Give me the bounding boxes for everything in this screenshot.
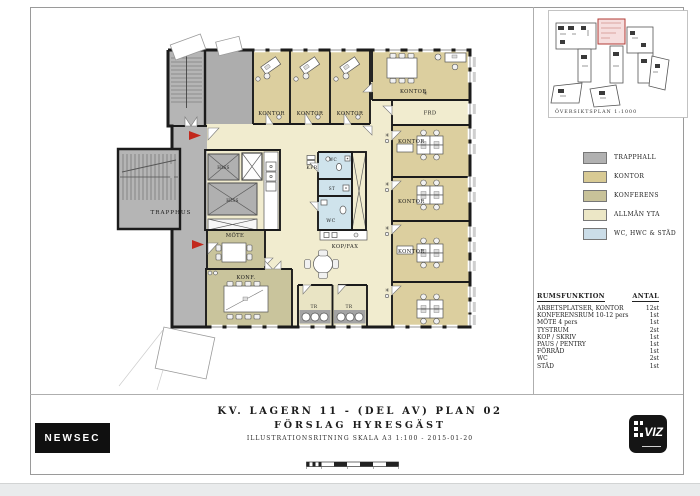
overview-plan: ÖVERSIKTSPLAN 1:1000 <box>548 10 688 118</box>
column-divider <box>533 7 534 395</box>
legend-swatch-wc <box>584 228 607 239</box>
label-hiss-2: HISS <box>226 198 239 203</box>
row-label: ARBETSPLATSER, KONTOR <box>537 305 624 312</box>
viz-tagline-mark <box>642 446 661 448</box>
table-row: WC2st <box>537 355 659 362</box>
floor-plan: ✳ ✳ ✳ ✳ ✳ TRAPPHUS HISS HISS KONTOR KONT… <box>105 14 525 394</box>
viz-dot <box>634 421 638 425</box>
label-frd: FRD <box>424 111 437 117</box>
legend: TRAPPHALL KONTOR KONFERENS ALLMÄN YTA WC… <box>583 148 676 243</box>
drawing-title: KV. LAGERN 11 - (DEL AV) PLAN 02 <box>160 406 560 417</box>
svg-text:✳: ✳ <box>385 132 390 139</box>
row-count: 1st <box>650 312 659 319</box>
room-table-col-count: ANTAL <box>632 292 659 302</box>
label-konf: KONF. <box>237 275 256 281</box>
row-count: 1st <box>650 319 659 326</box>
label-st: ST <box>329 186 335 191</box>
room-table-col-function: RUMSFUNKTION <box>537 292 605 302</box>
row-label: TYSTRUM <box>537 327 569 334</box>
drawing-info: ILLUSTRATIONSRITNING SKALA A3 1:100 - 20… <box>160 435 560 442</box>
viz-logo: VIZ <box>629 415 667 453</box>
label-hiss-1: HISS <box>217 165 230 170</box>
table-row: KONFERENSRUM 10-12 pers1st <box>537 312 659 319</box>
label-kontor-c: KONTOR <box>337 111 364 117</box>
room-function-table: RUMSFUNKTION ANTAL ARBETSPLATSER, KONTOR… <box>537 292 659 370</box>
gray-room-top <box>206 51 253 124</box>
row-count: 1st <box>650 341 659 348</box>
label-wc-top: WC <box>329 157 337 162</box>
row-label: WC <box>537 355 548 362</box>
legend-swatch-kontor <box>584 171 607 182</box>
legend-label-wc: WC, HWC & STÄD <box>614 230 676 237</box>
outside-margin <box>0 483 700 496</box>
legend-label-allman: ALLMÄN YTA <box>614 211 660 218</box>
legend-row-konferens: KONFERENS <box>583 186 676 205</box>
row-label: FÖRRÅD <box>537 348 564 355</box>
svg-text:✳: ✳ <box>385 181 390 188</box>
legend-label-trapphall: TRAPPHALL <box>614 154 656 161</box>
table-row: TYSTRUM2st <box>537 327 659 334</box>
row-count: 2st <box>650 327 659 334</box>
row-label: MÖTE 4 pers <box>537 319 577 326</box>
viz-logo-text: VIZ <box>644 425 663 439</box>
label-mote: MÖTE <box>226 232 244 239</box>
overview-title: ÖVERSIKTSPLAN 1:1000 <box>555 108 637 115</box>
label-wc-bottom: WC <box>326 218 335 224</box>
drawing-subtitle: FÖRSLAG HYRESGÄST <box>160 420 560 431</box>
scale-bar <box>306 460 406 472</box>
table-row: MÖTE 4 pers1st <box>537 319 659 326</box>
label-tr-2: TR <box>346 304 353 309</box>
viz-dot <box>634 433 638 437</box>
legend-swatch-konferens <box>584 190 607 201</box>
row-count: 2st <box>650 355 659 362</box>
title-block: KV. LAGERN 11 - (DEL AV) PLAN 02 FÖRSLAG… <box>160 406 560 442</box>
legend-row-wc: WC, HWC & STÄD <box>583 224 676 243</box>
row-label: STÄD <box>537 363 554 370</box>
label-tr-1: TR <box>311 304 318 309</box>
legend-row-trapphall: TRAPPHALL <box>583 148 676 167</box>
table-row: KOP / SKRIV1st <box>537 334 659 341</box>
newsec-logo: NEWSEC <box>35 423 110 453</box>
viz-dot <box>640 433 644 437</box>
table-row: FÖRRÅD1st <box>537 348 659 355</box>
legend-label-konferens: KONFERENS <box>614 192 659 199</box>
row-count: 1st <box>650 363 659 370</box>
label-kontor-2: KONTOR <box>398 139 425 145</box>
svg-text:✳: ✳ <box>385 287 390 294</box>
label-kpr: KPR <box>306 165 317 171</box>
label-kontor-topright: KONTOR <box>400 89 427 95</box>
titleblock-divider <box>30 394 683 395</box>
row-count: 12st <box>646 305 659 312</box>
label-kontor-4: KONTOR <box>398 249 425 255</box>
label-trapphus: TRAPPHUS <box>151 210 192 216</box>
viz-dot <box>634 427 638 431</box>
label-kontor-a: KONTOR <box>258 111 285 117</box>
row-label: KOP / SKRIV <box>537 334 576 341</box>
legend-row-allman: ALLMÄN YTA <box>583 205 676 224</box>
row-count: 1st <box>650 334 659 341</box>
legend-swatch-trapphall <box>584 152 607 163</box>
row-label: KONFERENSRUM 10-12 pers <box>537 312 628 319</box>
label-kontor-b: KONTOR <box>297 111 324 117</box>
label-kopfax: KOP/FAX <box>332 244 359 250</box>
legend-row-kontor: KONTOR <box>583 167 676 186</box>
legend-label-kontor: KONTOR <box>614 173 644 180</box>
room-table-header: RUMSFUNKTION ANTAL <box>537 292 659 302</box>
table-row: ARBETSPLATSER, KONTOR12st <box>537 305 659 312</box>
svg-text:✳: ✳ <box>385 225 390 232</box>
table-row: STÄD1st <box>537 363 659 370</box>
viz-dot <box>640 421 644 425</box>
legend-swatch-allman <box>584 209 607 220</box>
row-count: 1st <box>650 348 659 355</box>
label-kontor-3: KONTOR <box>398 199 425 205</box>
newsec-logo-text: NEWSEC <box>45 433 101 444</box>
